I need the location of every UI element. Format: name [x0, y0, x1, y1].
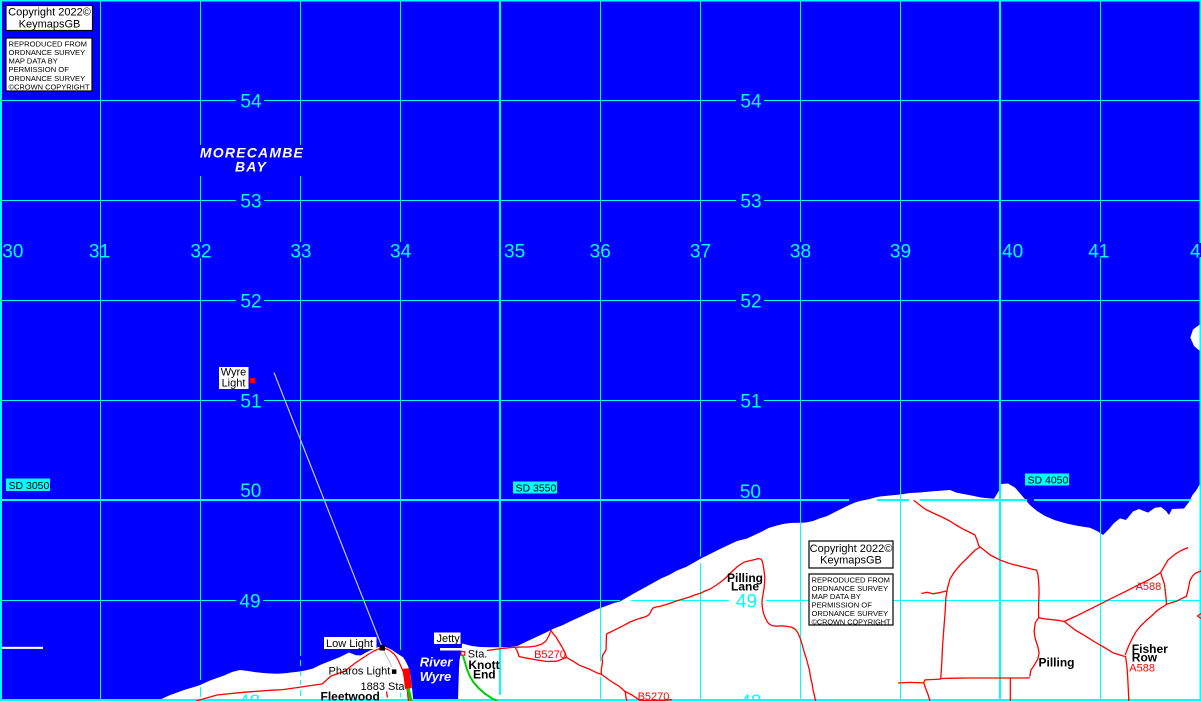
svg-text:A588: A588	[1136, 581, 1162, 593]
svg-text:49: 49	[239, 591, 260, 612]
svg-text:KeymapsGB: KeymapsGB	[19, 19, 81, 31]
svg-text:37: 37	[690, 241, 711, 262]
svg-text:53: 53	[240, 191, 261, 212]
svg-text:BAY: BAY	[235, 158, 268, 174]
svg-text:36: 36	[590, 241, 611, 262]
svg-text:50: 50	[740, 482, 761, 503]
svg-text:SD 3550: SD 3550	[516, 483, 557, 495]
svg-text:32: 32	[190, 241, 211, 262]
svg-text:Jetty: Jetty	[437, 633, 461, 645]
svg-text:©CROWN COPYRIGHT: ©CROWN COPYRIGHT	[9, 82, 90, 91]
svg-text:52: 52	[740, 291, 761, 312]
svg-text:48: 48	[740, 692, 761, 701]
svg-text:49: 49	[736, 591, 757, 612]
svg-text:35: 35	[504, 241, 525, 262]
svg-text:34: 34	[390, 241, 412, 262]
svg-text:A588: A588	[1129, 663, 1155, 675]
svg-text:38: 38	[790, 241, 811, 262]
svg-text:54: 54	[240, 91, 262, 112]
svg-text:©CROWN COPYRIGHT: ©CROWN COPYRIGHT	[812, 617, 891, 626]
svg-text:Wyre: Wyre	[420, 669, 452, 684]
svg-text:51: 51	[740, 391, 761, 412]
svg-text:Copyright 2022©: Copyright 2022©	[8, 7, 91, 19]
svg-text:KeymapsGB: KeymapsGB	[820, 555, 882, 567]
svg-text:B5270: B5270	[534, 649, 566, 661]
svg-text:30: 30	[2, 241, 23, 262]
svg-text:41: 41	[1088, 241, 1109, 262]
svg-text:Light: Light	[222, 378, 246, 390]
svg-text:51: 51	[240, 391, 261, 412]
svg-text:SD 3050: SD 3050	[9, 480, 50, 492]
svg-text:52: 52	[240, 291, 261, 312]
svg-text:40: 40	[1002, 241, 1023, 262]
svg-text:31: 31	[89, 241, 110, 262]
svg-text:54: 54	[740, 91, 762, 112]
svg-text:End: End	[473, 668, 496, 682]
svg-text:SD 4050: SD 4050	[1028, 475, 1069, 487]
svg-text:53: 53	[740, 191, 761, 212]
svg-text:Low Light: Low Light	[326, 638, 373, 650]
svg-text:48: 48	[239, 692, 260, 701]
svg-text:Pharos Light: Pharos Light	[329, 666, 391, 678]
svg-text:River: River	[420, 655, 453, 670]
svg-text:50: 50	[240, 481, 261, 502]
svg-text:Fleetwood: Fleetwood	[321, 689, 380, 701]
svg-text:39: 39	[890, 241, 911, 262]
svg-text:B5270: B5270	[638, 691, 670, 701]
svg-text:Pilling: Pilling	[1039, 656, 1075, 670]
svg-text:42: 42	[1190, 241, 1201, 262]
svg-text:33: 33	[290, 241, 311, 262]
svg-text:Copyright 2022©: Copyright 2022©	[810, 543, 893, 555]
